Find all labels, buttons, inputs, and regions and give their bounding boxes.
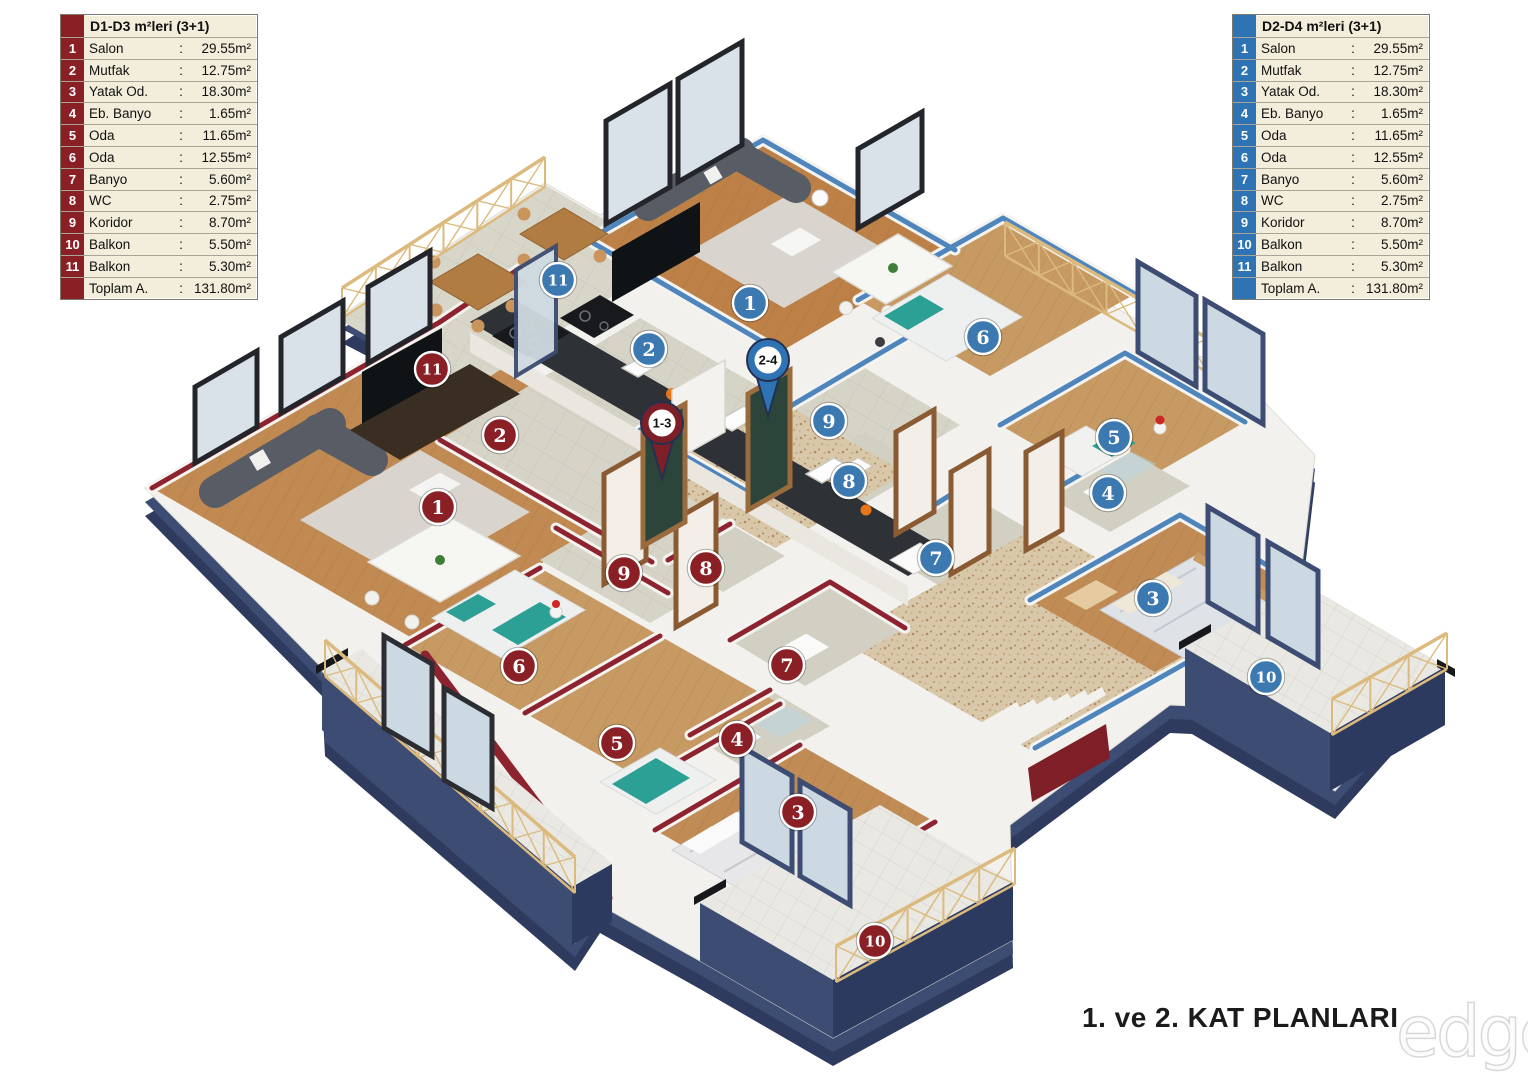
legend-row-name: Mutfak xyxy=(1257,60,1349,81)
legend-row-value: 12.75m² xyxy=(185,60,257,81)
legend-row-number: 11 xyxy=(1233,256,1257,277)
svg-text:1: 1 xyxy=(743,293,756,315)
legend-row-value: 2.75m² xyxy=(185,191,257,212)
legend-row-name: Salon xyxy=(85,38,177,59)
legend-d2-d4: D2-D4 m²leri (3+1) 1Salon:29.55m²2Mutfak… xyxy=(1232,14,1430,300)
legend-row-value: 18.30m² xyxy=(185,82,257,103)
legend-row-name: Yatak Od. xyxy=(85,82,177,103)
floor-plan-page: 12345678910111234567891011 1-32-4 D1-D3 … xyxy=(0,0,1528,1080)
legend-row: 8WC:2.75m² xyxy=(1233,191,1429,213)
legend-row-name: Oda xyxy=(85,147,177,168)
legend-row-number: 10 xyxy=(1233,234,1257,255)
legend-row-value: 1.65m² xyxy=(1357,103,1429,124)
legend-total-label: Toplam A. xyxy=(1257,278,1349,299)
legend-row: 7Banyo:5.60m² xyxy=(61,169,257,191)
svg-text:7: 7 xyxy=(780,655,793,677)
room-marker-d2-10: 10 xyxy=(1248,659,1285,696)
room-marker-d1-1: 1 xyxy=(420,489,457,526)
legend-row-value: 5.60m² xyxy=(1357,169,1429,190)
legend-row: 11Balkon:5.30m² xyxy=(61,256,257,278)
legend-row: 4Eb. Banyo:1.65m² xyxy=(1233,103,1429,125)
svg-text:edge: edge xyxy=(1396,992,1528,1073)
legend-total-colon: : xyxy=(177,278,185,299)
legend-total-colon: : xyxy=(1349,278,1357,299)
legend-title: D2-D4 m²leri (3+1) xyxy=(1257,15,1429,37)
legend-row-number: 10 xyxy=(61,234,85,255)
legend-row-name: Balkon xyxy=(1257,256,1349,277)
legend-row: 7Banyo:5.60m² xyxy=(1233,169,1429,191)
legend-row-number: 4 xyxy=(61,103,85,124)
room-marker-d2-5: 5 xyxy=(1096,419,1133,456)
svg-text:9: 9 xyxy=(822,411,835,433)
legend-row-colon: : xyxy=(177,38,185,59)
legend-row-number: 8 xyxy=(1233,191,1257,212)
legend-row-colon: : xyxy=(177,234,185,255)
room-marker-d1-11: 11 xyxy=(414,351,451,388)
legend-row-value: 11.65m² xyxy=(185,125,257,146)
legend-row-colon: : xyxy=(1349,191,1357,212)
svg-text:8: 8 xyxy=(842,471,855,493)
legend-row-number: 5 xyxy=(1233,125,1257,146)
legend-row-colon: : xyxy=(177,169,185,190)
svg-text:8: 8 xyxy=(699,558,712,580)
legend-row-colon: : xyxy=(1349,212,1357,233)
legend-row: 8WC:2.75m² xyxy=(61,191,257,213)
legend-row: 6Oda:12.55m² xyxy=(1233,147,1429,169)
legend-total-value: 131.80m² xyxy=(1357,278,1429,299)
legend-row-name: Koridor xyxy=(1257,212,1349,233)
legend-row: 2Mutfak:12.75m² xyxy=(61,60,257,82)
legend-row-value: 11.65m² xyxy=(1357,125,1429,146)
legend-row-colon: : xyxy=(177,147,185,168)
legend-row-name: Yatak Od. xyxy=(1257,82,1349,103)
legend-row-colon: : xyxy=(1349,169,1357,190)
legend-d2-d4-header: D2-D4 m²leri (3+1) xyxy=(1233,15,1429,38)
svg-text:3: 3 xyxy=(791,802,804,824)
legend-row-number: 7 xyxy=(61,169,85,190)
room-marker-d1-3: 3 xyxy=(780,794,817,831)
svg-text:11: 11 xyxy=(422,360,443,378)
legend-total-value: 131.80m² xyxy=(185,278,257,299)
legend-row-colon: : xyxy=(177,82,185,103)
legend-row: 3Yatak Od.:18.30m² xyxy=(1233,82,1429,104)
svg-text:4: 4 xyxy=(730,729,743,751)
legend-title: D1-D3 m²leri (3+1) xyxy=(85,15,257,37)
legend-row-name: Oda xyxy=(1257,125,1349,146)
legend-row-colon: : xyxy=(1349,103,1357,124)
legend-row-number: 3 xyxy=(61,82,85,103)
legend-row: 1Salon:29.55m² xyxy=(61,38,257,60)
legend-row-name: Salon xyxy=(1257,38,1349,59)
legend-total-row: Toplam A.:131.80m² xyxy=(1233,278,1429,299)
legend-row: 9Koridor:8.70m² xyxy=(1233,212,1429,234)
legend-row-colon: : xyxy=(1349,147,1357,168)
legend-total-label: Toplam A. xyxy=(85,278,177,299)
legend-row-value: 18.30m² xyxy=(1357,82,1429,103)
legend-row-name: Eb. Banyo xyxy=(85,103,177,124)
room-marker-d1-7: 7 xyxy=(769,647,806,684)
legend-row-value: 29.55m² xyxy=(1357,38,1429,59)
legend-row-value: 12.55m² xyxy=(185,147,257,168)
svg-text:6: 6 xyxy=(976,327,989,349)
legend-row-colon: : xyxy=(177,212,185,233)
legend-row-value: 2.75m² xyxy=(1357,191,1429,212)
legend-row-colon: : xyxy=(1349,82,1357,103)
legend-row: 6Oda:12.55m² xyxy=(61,147,257,169)
legend-row-colon: : xyxy=(1349,38,1357,59)
legend-row: 1Salon:29.55m² xyxy=(1233,38,1429,60)
legend-row-value: 5.30m² xyxy=(185,256,257,277)
legend-row-value: 5.60m² xyxy=(185,169,257,190)
legend-row: 11Balkon:5.30m² xyxy=(1233,256,1429,278)
svg-text:9: 9 xyxy=(617,563,630,585)
legend-header-swatch xyxy=(1233,15,1257,37)
legend-row-number: 2 xyxy=(61,60,85,81)
room-marker-d2-1: 1 xyxy=(732,285,769,322)
room-marker-d2-4: 4 xyxy=(1090,475,1127,512)
legend-row-colon: : xyxy=(1349,125,1357,146)
legend-row-colon: : xyxy=(177,191,185,212)
svg-text:6: 6 xyxy=(512,656,525,678)
legend-row-value: 29.55m² xyxy=(185,38,257,59)
legend-row-colon: : xyxy=(1349,256,1357,277)
legend-row-name: Balkon xyxy=(1257,234,1349,255)
room-marker-d1-10: 10 xyxy=(857,923,894,960)
legend-row-colon: : xyxy=(177,103,185,124)
legend-row-name: Balkon xyxy=(85,256,177,277)
room-marker-d1-9: 9 xyxy=(606,555,643,592)
svg-text:4: 4 xyxy=(1101,483,1114,505)
room-marker-d2-2: 2 xyxy=(631,331,668,368)
room-marker-d1-2: 2 xyxy=(482,417,519,454)
svg-text:7: 7 xyxy=(929,548,942,570)
legend-row-name: Banyo xyxy=(1257,169,1349,190)
room-marker-d2-8: 8 xyxy=(831,463,868,500)
legend-row-name: Oda xyxy=(85,125,177,146)
svg-text:2: 2 xyxy=(642,339,655,361)
legend-row-number: 8 xyxy=(61,191,85,212)
legend-row-number: 11 xyxy=(61,256,85,277)
legend-total-swatch xyxy=(1233,278,1257,299)
room-marker-d2-6: 6 xyxy=(965,319,1002,356)
svg-text:1: 1 xyxy=(431,497,444,519)
svg-text:5: 5 xyxy=(1107,427,1120,449)
legend-row-number: 6 xyxy=(61,147,85,168)
svg-text:1-3: 1-3 xyxy=(653,416,672,431)
legend-row-colon: : xyxy=(177,256,185,277)
legend-row-value: 5.30m² xyxy=(1357,256,1429,277)
svg-text:3: 3 xyxy=(1146,588,1159,610)
svg-text:10: 10 xyxy=(1256,668,1277,686)
room-marker-d1-5: 5 xyxy=(599,725,636,762)
legend-total-row: Toplam A.:131.80m² xyxy=(61,278,257,299)
legend-row-colon: : xyxy=(177,60,185,81)
legend-row-name: WC xyxy=(85,191,177,212)
legend-row: 5Oda:11.65m² xyxy=(1233,125,1429,147)
legend-row-name: Banyo xyxy=(85,169,177,190)
legend-header-swatch xyxy=(61,15,85,37)
legend-total-swatch xyxy=(61,278,85,299)
edge-watermark-logo: edge xyxy=(1394,992,1528,1080)
legend-row-colon: : xyxy=(1349,60,1357,81)
svg-text:2-4: 2-4 xyxy=(759,353,779,368)
legend-row-name: Oda xyxy=(1257,147,1349,168)
plan-title: 1. ve 2. KAT PLANLARI xyxy=(1082,1002,1412,1034)
legend-row-value: 12.75m² xyxy=(1357,60,1429,81)
legend-row: 10Balkon:5.50m² xyxy=(61,234,257,256)
svg-text:10: 10 xyxy=(865,932,886,950)
legend-row-name: Mutfak xyxy=(85,60,177,81)
svg-text:11: 11 xyxy=(548,271,569,289)
legend-row-name: Koridor xyxy=(85,212,177,233)
legend-row-name: Balkon xyxy=(85,234,177,255)
legend-row-colon: : xyxy=(1349,234,1357,255)
room-marker-d2-11: 11 xyxy=(540,262,577,299)
legend-row-number: 1 xyxy=(1233,38,1257,59)
legend-d1-d3: D1-D3 m²leri (3+1) 1Salon:29.55m²2Mutfak… xyxy=(60,14,258,300)
legend-row-value: 12.55m² xyxy=(1357,147,1429,168)
legend-row: 5Oda:11.65m² xyxy=(61,125,257,147)
room-marker-d2-7: 7 xyxy=(918,540,955,577)
legend-d1-d3-header: D1-D3 m²leri (3+1) xyxy=(61,15,257,38)
legend-row-number: 9 xyxy=(61,212,85,233)
legend-row-number: 7 xyxy=(1233,169,1257,190)
svg-text:5: 5 xyxy=(610,733,623,755)
legend-row: 9Koridor:8.70m² xyxy=(61,212,257,234)
legend-row-number: 1 xyxy=(61,38,85,59)
legend-row-value: 1.65m² xyxy=(185,103,257,124)
room-marker-d2-9: 9 xyxy=(811,403,848,440)
legend-row-number: 5 xyxy=(61,125,85,146)
legend-row: 2Mutfak:12.75m² xyxy=(1233,60,1429,82)
legend-row-number: 2 xyxy=(1233,60,1257,81)
legend-row-value: 8.70m² xyxy=(185,212,257,233)
legend-row: 3Yatak Od.:18.30m² xyxy=(61,82,257,104)
room-marker-d2-3: 3 xyxy=(1135,580,1172,617)
room-marker-d1-4: 4 xyxy=(719,721,756,758)
legend-row-number: 3 xyxy=(1233,82,1257,103)
legend-row-colon: : xyxy=(177,125,185,146)
room-marker-d1-6: 6 xyxy=(501,648,538,685)
room-marker-d1-8: 8 xyxy=(688,550,725,587)
legend-row: 4Eb. Banyo:1.65m² xyxy=(61,103,257,125)
legend-row-name: WC xyxy=(1257,191,1349,212)
legend-row-number: 9 xyxy=(1233,212,1257,233)
legend-row-number: 6 xyxy=(1233,147,1257,168)
legend-row: 10Balkon:5.50m² xyxy=(1233,234,1429,256)
legend-row-value: 8.70m² xyxy=(1357,212,1429,233)
legend-row-value: 5.50m² xyxy=(1357,234,1429,255)
svg-text:2: 2 xyxy=(493,425,506,447)
legend-row-name: Eb. Banyo xyxy=(1257,103,1349,124)
legend-row-number: 4 xyxy=(1233,103,1257,124)
legend-row-value: 5.50m² xyxy=(185,234,257,255)
